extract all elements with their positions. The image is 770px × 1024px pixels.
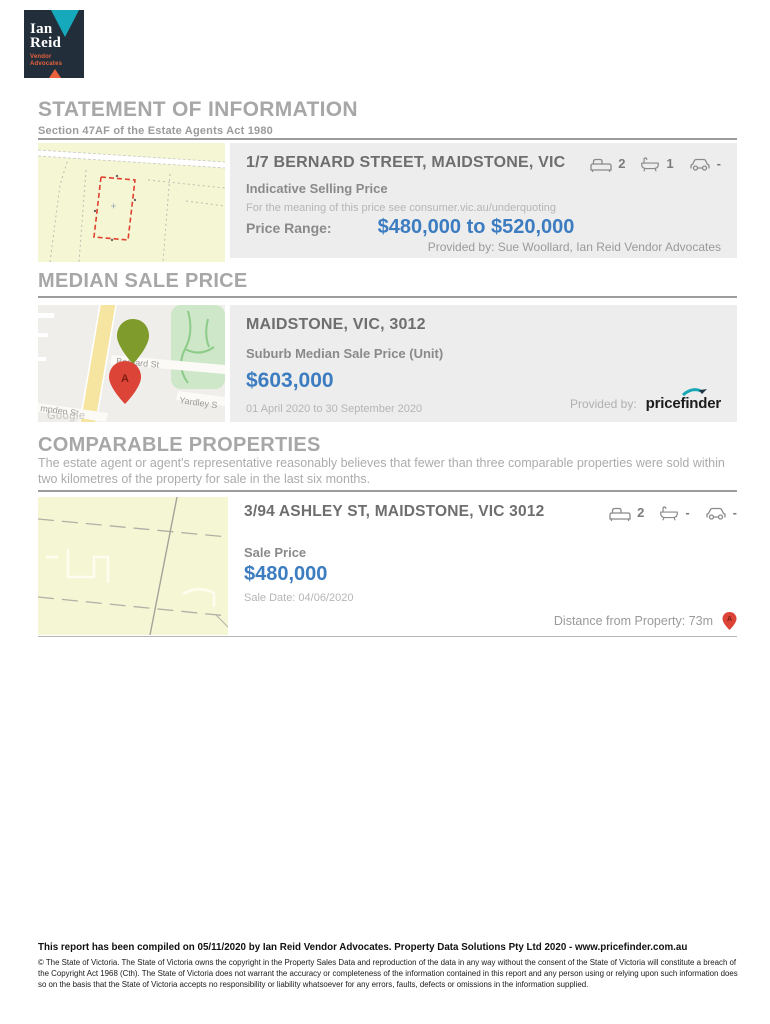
bed-icon <box>589 155 613 172</box>
subject-property-card: 1/7 BERNARD STREET, MAIDSTONE, VIC 2 <box>38 143 737 262</box>
subject-address: 1/7 BERNARD STREET, MAIDSTONE, VIC <box>246 154 565 172</box>
red-map-pin-icon: A <box>722 611 737 631</box>
bed-icon <box>608 504 632 521</box>
comparables-divider-top <box>38 490 737 492</box>
car-icon <box>688 155 712 172</box>
logo-wordmark: Ian Reid <box>30 22 61 50</box>
logo-tagline-line1: Vendor <box>30 54 62 61</box>
median-metric-label: Suburb Median Sale Price (Unit) <box>246 346 721 361</box>
comparables-divider-bottom <box>38 636 737 637</box>
comparable-property-details: 3/94 ASHLEY ST, MAIDSTONE, VIC 3012 2 <box>244 497 737 635</box>
suburb-street-map: Bernard St Yardley S mpden St Google A <box>38 305 225 422</box>
logo-tagline-line2: Advocates <box>30 61 62 68</box>
median-sale-price-card: Bernard St Yardley S mpden St Google A M… <box>38 305 737 422</box>
subject-beds-count: 2 <box>618 156 625 171</box>
google-watermark: Google <box>47 410 85 422</box>
comparable-property-parcel-map <box>38 497 228 635</box>
header-divider <box>38 138 737 140</box>
logo-name-line1: Ian <box>30 22 61 36</box>
subject-baths-count: 1 <box>666 156 673 171</box>
page-title: STATEMENT OF INFORMATION <box>38 98 358 122</box>
comparable-beds-count: 2 <box>637 505 644 520</box>
pricefinder-swoosh-icon <box>682 386 708 396</box>
pricefinder-logo-text: pricefinder <box>646 395 721 412</box>
price-range-label: Price Range: <box>246 220 332 236</box>
page-subtitle: Section 47AF of the Estate Agents Act 19… <box>38 125 273 137</box>
median-metric-value: $603,000 <box>246 369 721 393</box>
ian-reid-logo: Ian Reid Vendor Advocates <box>24 10 84 78</box>
pin-letter: A <box>727 616 732 623</box>
median-locality: MAIDSTONE, VIC, 3012 <box>246 316 721 334</box>
sale-price-label: Sale Price <box>244 545 737 560</box>
comparable-property-card: 3/94 ASHLEY ST, MAIDSTONE, VIC 3012 2 <box>38 497 737 635</box>
comparable-properties-heading: COMPARABLE PROPERTIES <box>38 434 321 457</box>
sale-date: Sale Date: 04/06/2020 <box>244 592 737 604</box>
comparable-features: 2 - <box>594 504 737 521</box>
bath-icon <box>658 504 680 521</box>
subject-property-panel: 1/7 BERNARD STREET, MAIDSTONE, VIC 2 <box>230 143 737 258</box>
median-sale-price-panel: MAIDSTONE, VIC, 3012 Suburb Median Sale … <box>230 305 737 422</box>
comparable-address: 3/94 ASHLEY ST, MAIDSTONE, VIC 3012 <box>244 503 544 521</box>
logo-tagline: Vendor Advocates <box>30 54 62 68</box>
pricefinder-logo: pricefinder <box>646 395 721 412</box>
price-range-value: $480,000 to $520,000 <box>378 216 575 239</box>
sale-price-value: $480,000 <box>244 563 737 586</box>
logo-name-line2: Reid <box>30 36 61 50</box>
pricefinder-provided-by-label: Provided by: <box>570 397 637 411</box>
comparables-disclaimer: The estate agent or agent's representati… <box>38 455 737 487</box>
car-icon <box>704 504 728 521</box>
map-pin-letter: A <box>121 373 129 385</box>
comparable-cars-count: - <box>733 505 737 520</box>
median-divider <box>38 296 737 298</box>
underquoting-note: For the meaning of this price see consum… <box>246 202 721 214</box>
copyright-disclaimer: © The State of Victoria. The State of Vi… <box>38 957 742 991</box>
statement-of-information-page: Ian Reid Vendor Advocates STATEMENT OF I… <box>0 0 770 1024</box>
median-sale-price-heading: MEDIAN SALE PRICE <box>38 270 248 293</box>
subject-cars-count: - <box>717 156 721 171</box>
distance-from-property: Distance from Property: 73m <box>554 614 713 628</box>
subject-provided-by: Provided by: Sue Woollard, Ian Reid Vend… <box>246 240 721 254</box>
comparable-baths-count: - <box>685 505 689 520</box>
indicative-selling-price-label: Indicative Selling Price <box>246 181 721 196</box>
logo-orange-triangle-icon <box>49 69 61 78</box>
bath-icon <box>639 155 661 172</box>
subject-features: 2 1 <box>575 155 721 172</box>
report-compiled-line: This report has been compiled on 05/11/2… <box>38 942 740 953</box>
subject-property-parcel-map <box>38 143 225 262</box>
